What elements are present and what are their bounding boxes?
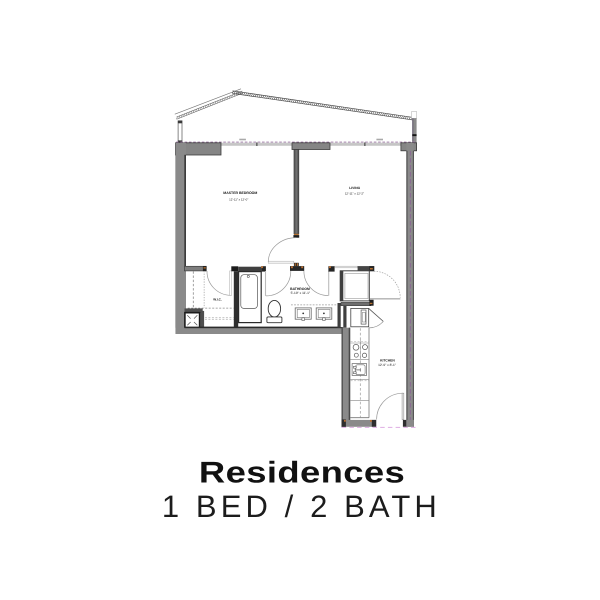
svg-text:12'-11" x 12'-2": 12'-11" x 12'-2" [345,191,364,195]
svg-text:MASTER BEDROOM: MASTER BEDROOM [223,191,257,195]
svg-text:KITCHEN: KITCHEN [380,359,395,363]
svg-text:1 BED / 2 BATH: 1 BED / 2 BATH [162,489,441,524]
svg-text:12'-11" x 12'-0": 12'-11" x 12'-0" [229,197,248,201]
svg-text:W.I.C.: W.I.C. [213,297,222,301]
svg-text:12'-9" x 8'-1": 12'-9" x 8'-1" [378,363,396,367]
svg-text:LIVING: LIVING [349,186,360,190]
svg-text:5'-10" x 11'-1": 5'-10" x 11'-1" [291,291,310,295]
svg-text:Residences: Residences [199,456,405,489]
